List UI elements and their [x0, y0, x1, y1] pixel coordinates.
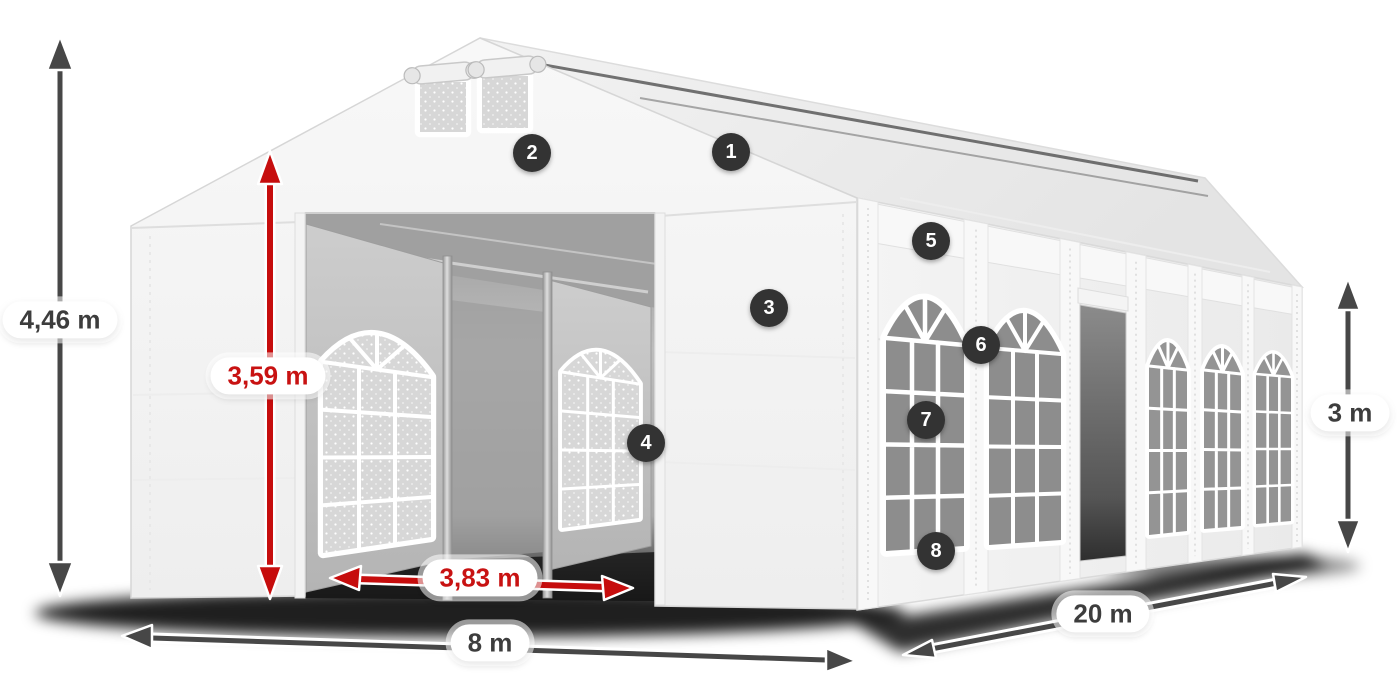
arched-window [1149, 342, 1187, 535]
entrance-interior [303, 213, 657, 601]
arched-window [1204, 348, 1241, 529]
dimension-label-total-height: 4,46 m [3, 301, 118, 338]
entrance-left-jamb [295, 213, 305, 598]
tent-dimension-diagram: 4,46 m 3,59 m 3,83 m 8 m 20 m 3 m 1 2 3 … [0, 0, 1400, 700]
arched-window [323, 335, 431, 553]
feature-badge-3: 3 [750, 289, 788, 327]
feature-badge-6: 6 [962, 326, 1000, 364]
arched-window [482, 76, 528, 128]
side-door-opening [1078, 288, 1128, 561]
feature-badge-8: 8 [917, 532, 955, 570]
arched-window [1256, 353, 1291, 524]
arched-window [420, 82, 466, 132]
dimension-label-entrance-height: 3,59 m [211, 357, 326, 394]
dimension-label-length: 20 m [1056, 595, 1149, 632]
feature-badge-4: 4 [627, 424, 665, 462]
entrance-right-jamb [655, 213, 665, 605]
feature-badge-2: 2 [513, 134, 551, 172]
feature-badge-7: 7 [907, 401, 945, 439]
dimension-label-front-width: 8 m [451, 624, 530, 661]
tent-illustration [0, 0, 1400, 700]
dimension-label-side-height: 3 m [1311, 394, 1390, 431]
feature-badge-5: 5 [912, 222, 950, 260]
dimension-label-entrance-width: 3,83 m [423, 559, 538, 596]
feature-badge-1: 1 [712, 133, 750, 171]
